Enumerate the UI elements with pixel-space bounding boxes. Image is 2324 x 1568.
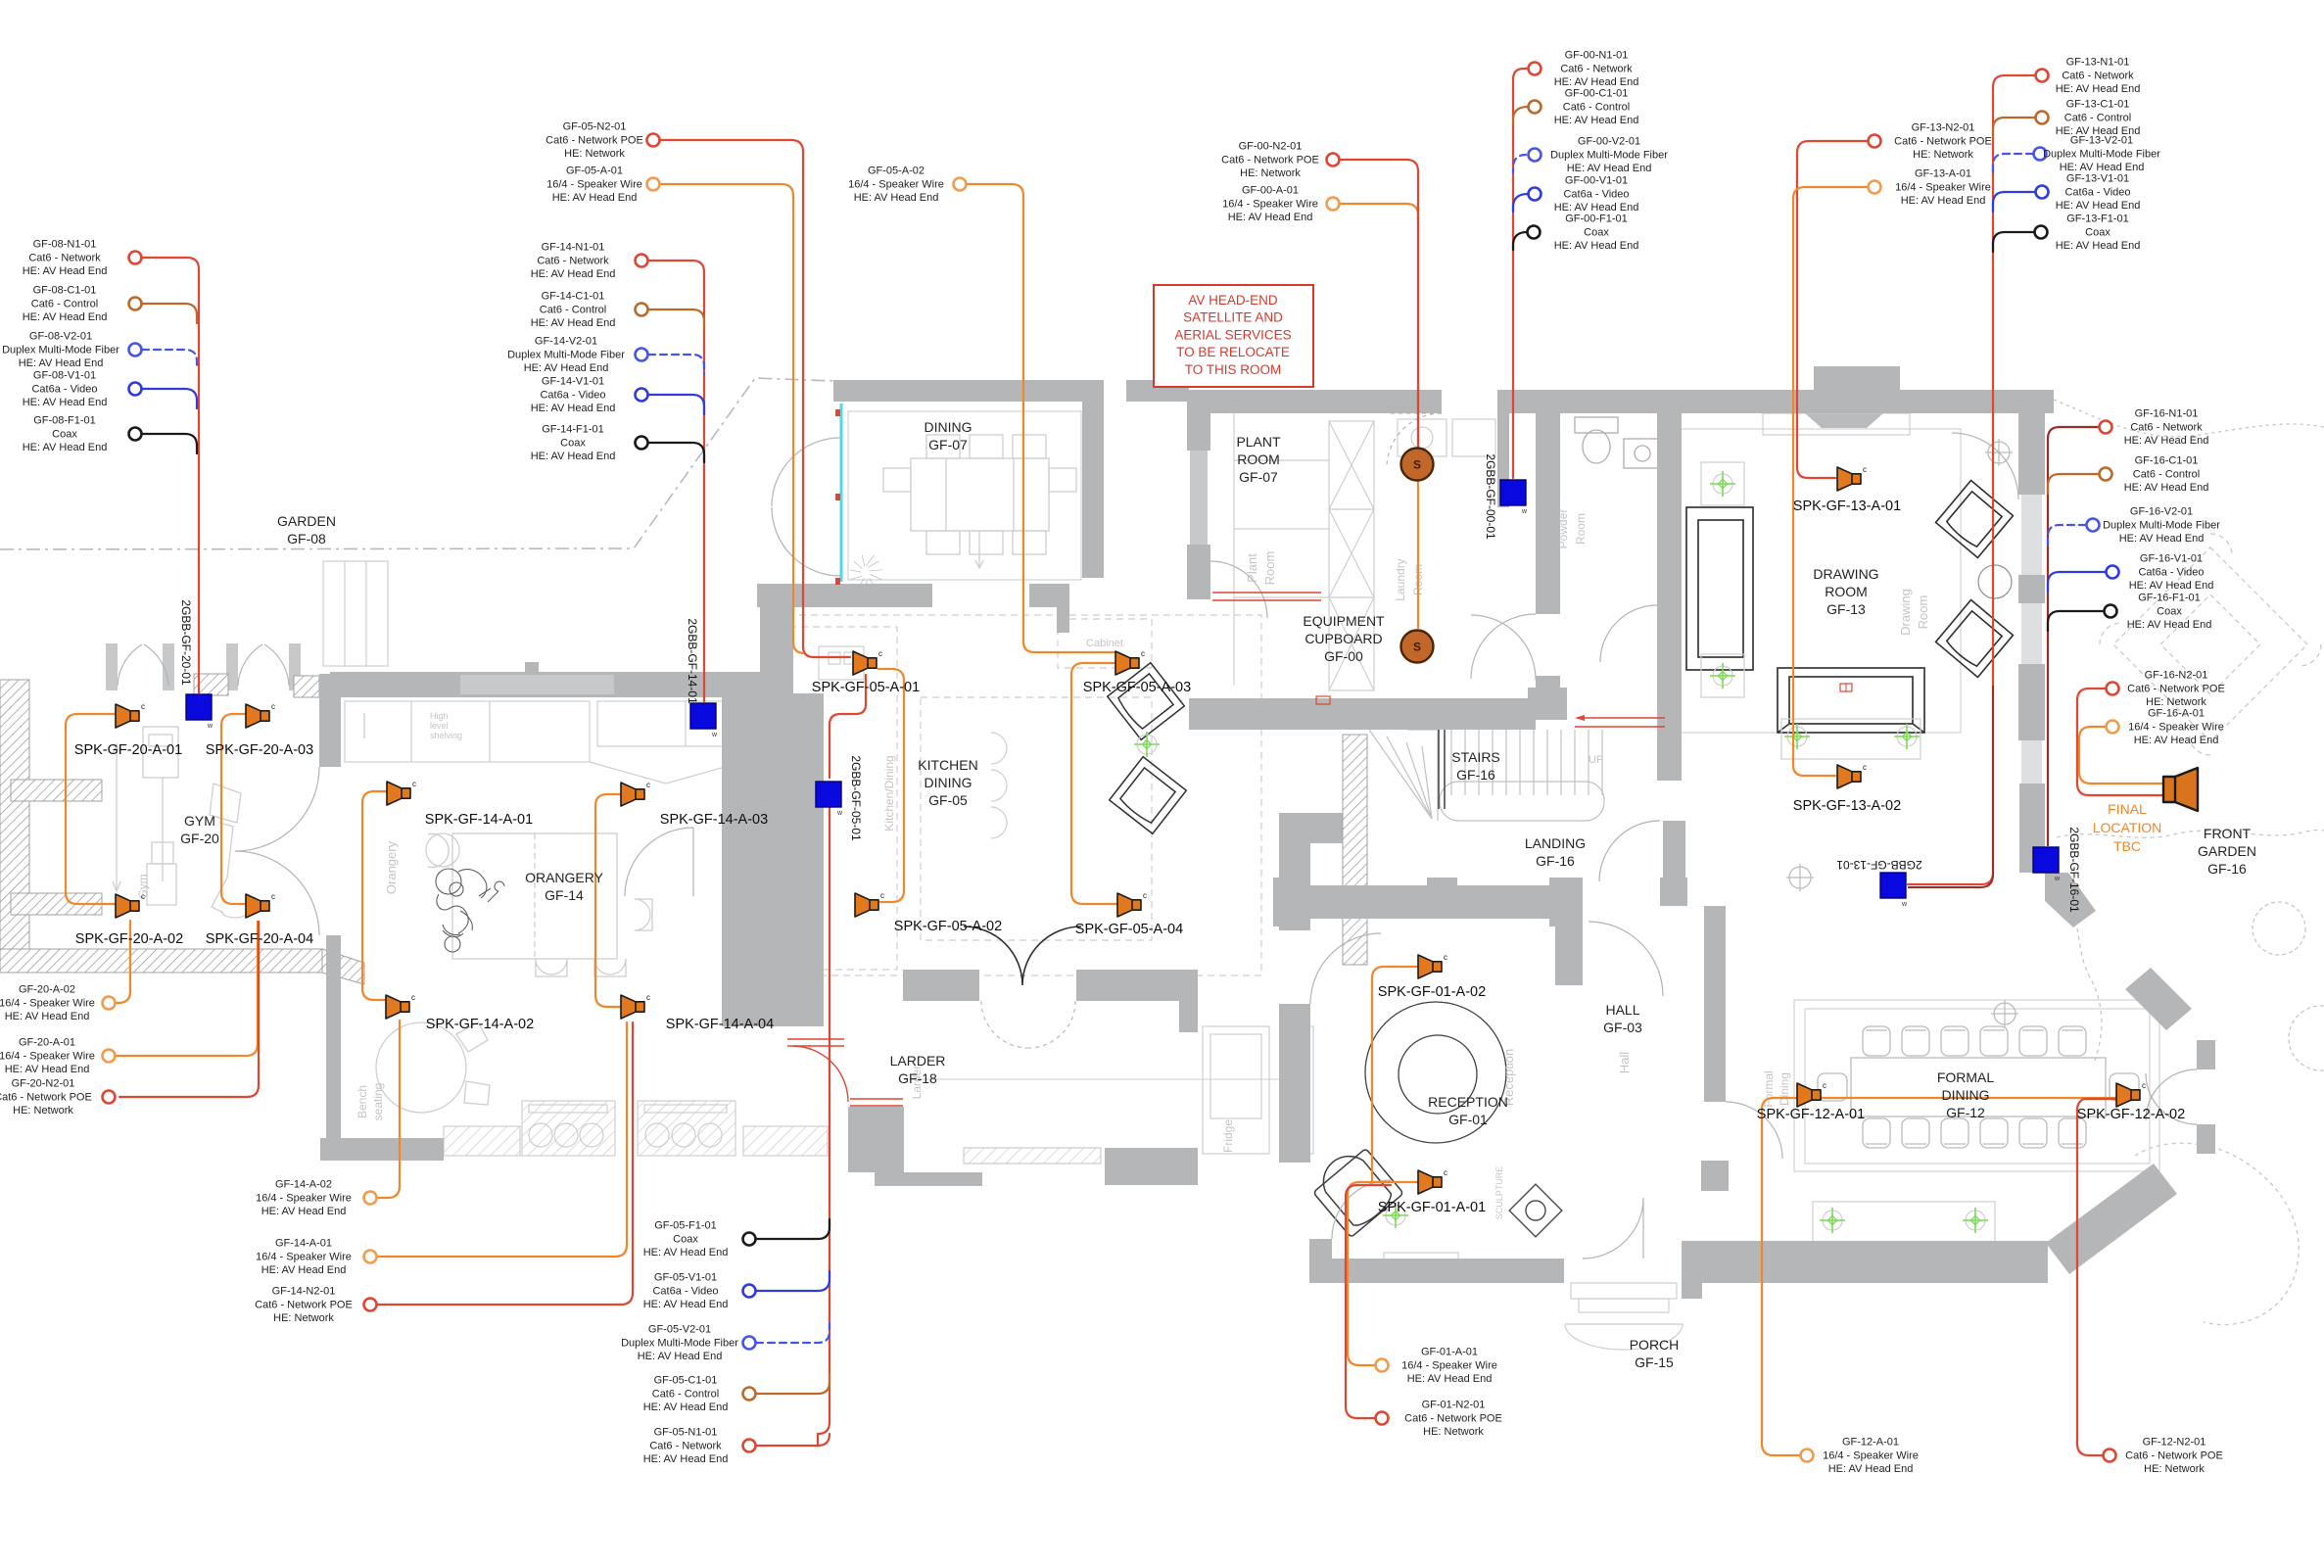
svg-text:Laundry: Laundry	[1394, 558, 1407, 600]
svg-text:LOCATION: LOCATION	[2093, 820, 2162, 835]
svg-text:GF-07: GF-07	[928, 437, 968, 452]
svg-text:RECEPTION: RECEPTION	[1428, 1094, 1508, 1110]
svg-text:GF-13: GF-13	[1826, 601, 1866, 617]
svg-text:GF-05-N1-01Cat6 - NetworkHE: A: GF-05-N1-01Cat6 - NetworkHE: AV Head End	[643, 1427, 729, 1466]
svg-text:GF-08-N1-01Cat6 - NetworkHE: A: GF-08-N1-01Cat6 - NetworkHE: AV Head End	[23, 239, 108, 278]
svg-text:2GBB-GF-13-01: 2GBB-GF-13-01	[1836, 858, 1922, 872]
svg-text:STAIRS: STAIRS	[1451, 749, 1500, 765]
svg-text:GF-16-C1-01Cat6 - ControlHE: A: GF-16-C1-01Cat6 - ControlHE: AV Head End	[2124, 455, 2209, 495]
svg-text:Hall: Hall	[1617, 1052, 1632, 1074]
svg-text:ORANGERY: ORANGERY	[525, 870, 604, 885]
svg-text:AERIAL SERVICES: AERIAL SERVICES	[1174, 327, 1291, 342]
svg-text:GF-20: GF-20	[180, 831, 219, 846]
svg-text:2GBB-GF-00-01: 2GBB-GF-00-01	[1484, 453, 1497, 540]
svg-text:GF-00-N1-01Cat6 - NetworkHE: A: GF-00-N1-01Cat6 - NetworkHE: AV Head End	[1554, 50, 1639, 89]
svg-text:GF-00-C1-01Cat6 - ControlHE: A: GF-00-C1-01Cat6 - ControlHE: AV Head End	[1554, 88, 1639, 127]
svg-text:SPK-GF-13-A-02: SPK-GF-13-A-02	[1793, 798, 1901, 814]
svg-text:SPK-GF-14-A-02: SPK-GF-14-A-02	[426, 1017, 534, 1032]
svg-text:DINING: DINING	[1942, 1087, 1990, 1103]
svg-text:Kitchen/Dining: Kitchen/Dining	[882, 755, 896, 831]
svg-text:GF-16: GF-16	[1536, 853, 1575, 869]
svg-text:ROOM: ROOM	[1237, 451, 1280, 467]
svg-text:Dining: Dining	[1778, 1072, 1791, 1106]
svg-text:SPK-GF-12-A-01: SPK-GF-12-A-01	[1757, 1107, 1865, 1122]
svg-text:LARDER: LARDER	[890, 1053, 946, 1069]
svg-text:KITCHEN: KITCHEN	[918, 757, 977, 773]
svg-text:SPK-GF-01-A-01: SPK-GF-01-A-01	[1378, 1200, 1486, 1215]
svg-text:GF-14-N1-01Cat6 - NetworkHE: A: GF-14-N1-01Cat6 - NetworkHE: AV Head End	[531, 242, 616, 281]
svg-text:High: High	[430, 711, 449, 721]
svg-text:GF-14: GF-14	[545, 887, 584, 903]
svg-text:level: level	[430, 721, 449, 731]
svg-text:2GBB-GF-20-01: 2GBB-GF-20-01	[179, 599, 193, 686]
svg-text:GF-16-N1-01Cat6 - NetworkHE: A: GF-16-N1-01Cat6 - NetworkHE: AV Head End	[2124, 408, 2209, 448]
svg-text:SPK-GF-20-A-03: SPK-GF-20-A-03	[206, 742, 313, 758]
svg-text:GF-00: GF-00	[1324, 648, 1363, 664]
svg-text:SPK-GF-14-A-01: SPK-GF-14-A-01	[425, 812, 533, 828]
svg-text:SPK-GF-20-A-01: SPK-GF-20-A-01	[74, 742, 182, 758]
svg-text:Room: Room	[1262, 551, 1277, 586]
svg-text:2GBB-GF-05-01: 2GBB-GF-05-01	[849, 755, 863, 841]
svg-text:GF-08-C1-01Cat6 - ControlHE: A: GF-08-C1-01Cat6 - ControlHE: AV Head End	[23, 285, 108, 324]
svg-text:GF-12: GF-12	[1946, 1105, 1985, 1120]
svg-text:GF-05-C1-01Cat6 - ControlHE: A: GF-05-C1-01Cat6 - ControlHE: AV Head End	[643, 1375, 729, 1414]
svg-text:SPK-GF-14-A-03: SPK-GF-14-A-03	[660, 812, 768, 828]
svg-text:Plant: Plant	[1245, 553, 1259, 583]
svg-text:Cabinet: Cabinet	[1086, 638, 1123, 649]
svg-text:SPK-GF-12-A-02: SPK-GF-12-A-02	[2077, 1107, 2185, 1122]
svg-text:EQUIPMENT: EQUIPMENT	[1303, 613, 1385, 629]
svg-text:SPK-GF-20-A-02: SPK-GF-20-A-02	[75, 931, 183, 947]
svg-text:CUPBOARD: CUPBOARD	[1304, 631, 1382, 646]
svg-text:Bench: Bench	[356, 1085, 369, 1118]
svg-text:GF-07: GF-07	[1239, 469, 1278, 485]
svg-text:GF-13-V1-01Cat6a - VideoHE: AV: GF-13-V1-01Cat6a - VideoHE: AV Head End	[2056, 173, 2141, 213]
svg-text:GF-13-C1-01Cat6 - ControlHE: A: GF-13-C1-01Cat6 - ControlHE: AV Head End	[2056, 99, 2141, 138]
svg-text:SPK-GF-05-A-04: SPK-GF-05-A-04	[1075, 922, 1183, 937]
svg-text:GF-18: GF-18	[898, 1070, 937, 1086]
svg-text:TO BE RELOCATE: TO BE RELOCATE	[1176, 345, 1290, 359]
svg-text:AV HEAD-END: AV HEAD-END	[1188, 293, 1278, 308]
svg-text:Fridge: Fridge	[1221, 1119, 1235, 1153]
svg-text:DRAWING: DRAWING	[1813, 566, 1878, 582]
svg-text:PLANT: PLANT	[1236, 434, 1281, 450]
svg-text:Orangery: Orangery	[384, 840, 399, 894]
svg-text:shelving: shelving	[430, 731, 462, 740]
svg-text:SPK-GF-13-A-01: SPK-GF-13-A-01	[1793, 499, 1901, 514]
svg-text:GF-13-N1-01Cat6 - NetworkHE: A: GF-13-N1-01Cat6 - NetworkHE: AV Head End	[2056, 57, 2141, 96]
svg-text:Room: Room	[1916, 595, 1930, 630]
svg-text:UP: UP	[1589, 754, 1603, 766]
svg-text:seating: seating	[371, 1083, 385, 1121]
svg-text:GF-01: GF-01	[1448, 1112, 1488, 1127]
svg-text:GF-03: GF-03	[1603, 1020, 1642, 1035]
svg-text:GARDEN: GARDEN	[2198, 843, 2256, 859]
svg-text:GF-00-V1-01Cat6a - VideoHE: AV: GF-00-V1-01Cat6a - VideoHE: AV Head End	[1554, 175, 1639, 214]
svg-text:GF-05: GF-05	[928, 792, 968, 808]
svg-text:FORMAL: FORMAL	[1937, 1069, 1995, 1085]
svg-text:FINAL: FINAL	[2108, 801, 2147, 817]
svg-text:ROOM: ROOM	[1825, 584, 1868, 599]
svg-text:FRONT: FRONT	[2204, 826, 2252, 841]
svg-text:PORCH: PORCH	[1630, 1337, 1680, 1353]
svg-text:SPK-GF-20-A-04: SPK-GF-20-A-04	[206, 931, 313, 947]
svg-text:GYM: GYM	[184, 813, 215, 829]
svg-text:GF-16-V1-01Cat6a - VideoHE: AV: GF-16-V1-01Cat6a - VideoHE: AV Head End	[2129, 553, 2214, 593]
svg-text:GF-16: GF-16	[2207, 861, 2247, 877]
svg-text:GF-08: GF-08	[287, 531, 326, 546]
svg-text:Room: Room	[1574, 513, 1588, 545]
svg-text:GF-16: GF-16	[1456, 767, 1495, 783]
svg-text:DINING: DINING	[925, 775, 972, 790]
svg-text:GF-14-V1-01Cat6a - VideoHE: AV: GF-14-V1-01Cat6a - VideoHE: AV Head End	[531, 376, 616, 415]
svg-text:TO THIS ROOM: TO THIS ROOM	[1185, 362, 1282, 377]
svg-text:SATELLITE AND: SATELLITE AND	[1183, 310, 1283, 325]
svg-text:GF-08-V1-01Cat6a - VideoHE: AV: GF-08-V1-01Cat6a - VideoHE: AV Head End	[23, 370, 108, 409]
svg-text:GARDEN: GARDEN	[277, 513, 336, 529]
svg-text:GF-05-V1-01Cat6a - VideoHE: AV: GF-05-V1-01Cat6a - VideoHE: AV Head End	[643, 1272, 729, 1311]
svg-text:Drawing: Drawing	[1898, 589, 1913, 636]
svg-text:SPK-GF-05-A-02: SPK-GF-05-A-02	[894, 919, 1002, 934]
svg-text:SPK-GF-05-A-01: SPK-GF-05-A-01	[812, 680, 920, 695]
svg-text:DINING: DINING	[925, 419, 972, 435]
svg-text:LANDING: LANDING	[1525, 835, 1586, 851]
svg-text:SPK-GF-01-A-02: SPK-GF-01-A-02	[1378, 984, 1486, 1000]
svg-text:SPK-GF-14-A-04: SPK-GF-14-A-04	[666, 1017, 774, 1032]
svg-text:TBC: TBC	[2113, 838, 2141, 854]
svg-text:2GBB-GF-14-01: 2GBB-GF-14-01	[686, 618, 699, 704]
svg-text:GF-15: GF-15	[1635, 1354, 1674, 1370]
svg-text:SPK-GF-05-A-03: SPK-GF-05-A-03	[1083, 680, 1191, 695]
svg-text:HALL: HALL	[1605, 1002, 1639, 1018]
svg-text:SCULPTURE: SCULPTURE	[1494, 1166, 1504, 1220]
svg-text:2GBB-GF-16-01: 2GBB-GF-16-01	[2067, 827, 2081, 913]
svg-text:GF-14-C1-01Cat6 - ControlHE: A: GF-14-C1-01Cat6 - ControlHE: AV Head End	[531, 291, 616, 330]
